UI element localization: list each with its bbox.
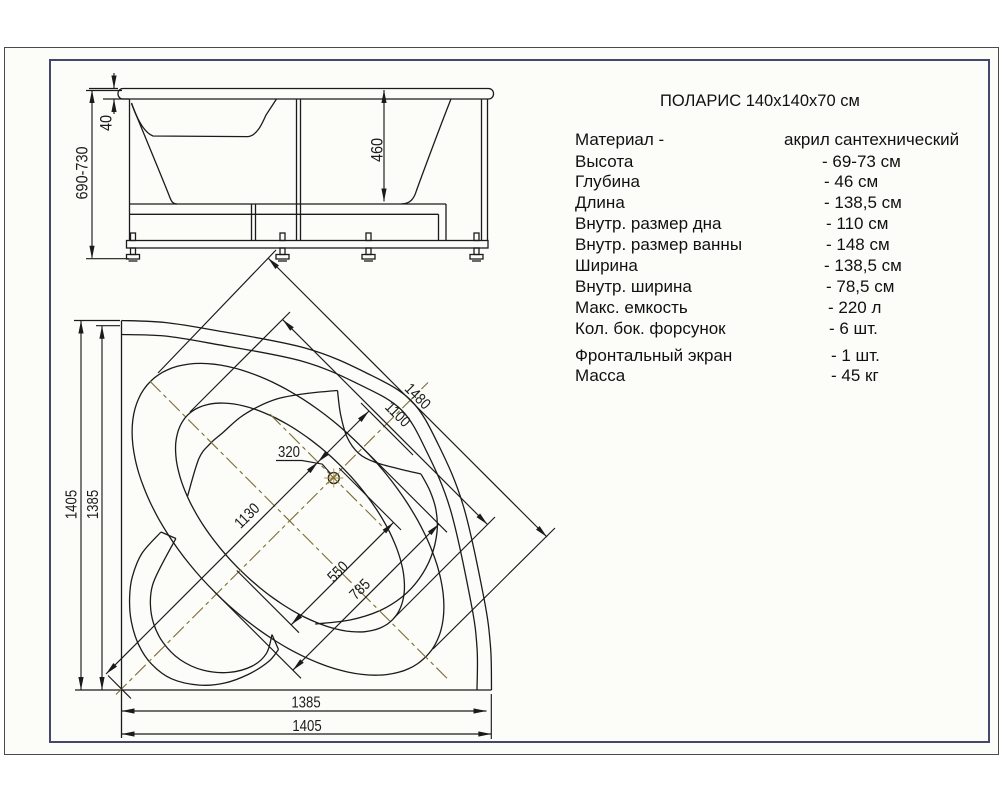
- svg-text:1405: 1405: [292, 718, 321, 735]
- svg-text:1385: 1385: [85, 490, 102, 519]
- svg-text:1385: 1385: [291, 694, 320, 711]
- svg-text:785: 785: [346, 576, 374, 604]
- svg-text:1100: 1100: [381, 399, 413, 431]
- svg-text:40: 40: [97, 115, 115, 131]
- svg-text:460: 460: [368, 138, 386, 162]
- svg-text:1405: 1405: [63, 490, 80, 519]
- svg-text:1480: 1480: [401, 380, 434, 413]
- svg-text:550: 550: [324, 558, 352, 586]
- svg-text:320: 320: [278, 444, 300, 461]
- svg-text:1130: 1130: [231, 500, 263, 532]
- svg-text:690-730: 690-730: [73, 146, 91, 199]
